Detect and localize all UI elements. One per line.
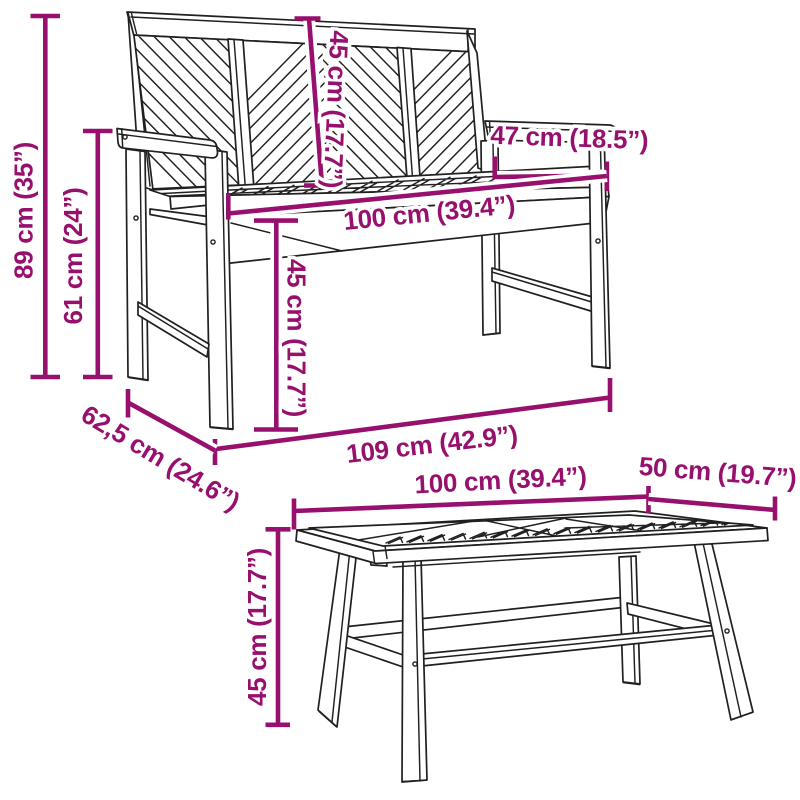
- svg-text:45 cm (17.7”): 45 cm (17.7”): [282, 259, 312, 417]
- svg-text:47 cm (18.5”): 47 cm (18.5”): [490, 120, 649, 155]
- svg-text:61 cm (24”): 61 cm (24”): [58, 188, 88, 325]
- svg-text:45 cm (17.7”): 45 cm (17.7”): [242, 548, 272, 706]
- svg-text:89 cm (35”): 89 cm (35”): [9, 142, 39, 279]
